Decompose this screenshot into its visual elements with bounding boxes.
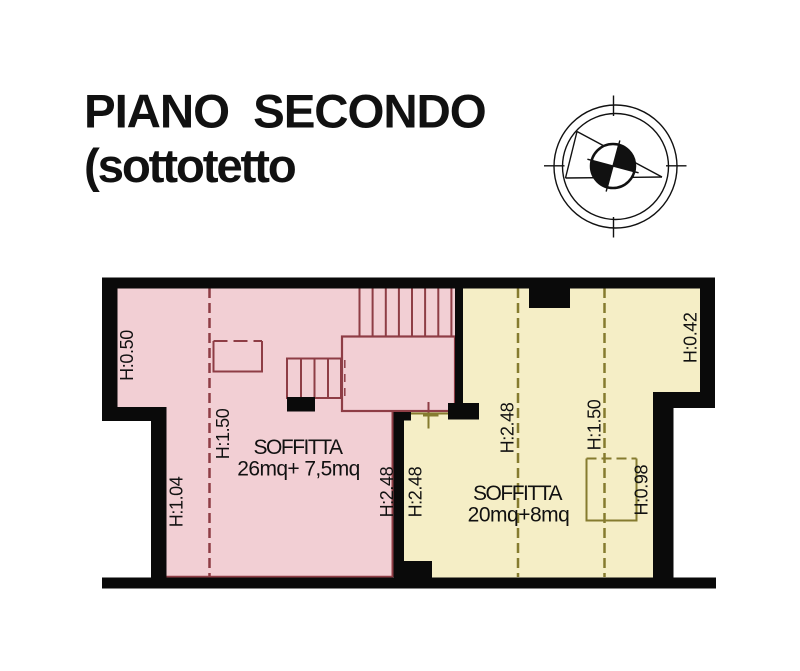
svg-text:20mq+8mq: 20mq+8mq	[468, 504, 570, 527]
svg-text:H:2.48: H:2.48	[377, 466, 397, 517]
svg-text:H:2.48: H:2.48	[406, 466, 426, 517]
svg-text:H:0.42: H:0.42	[680, 312, 700, 363]
svg-text:H:1.04: H:1.04	[167, 476, 187, 527]
svg-text:H:2.48: H:2.48	[498, 402, 518, 453]
svg-text:PIANO SECONDO: PIANO SECONDO	[84, 86, 486, 139]
svg-text:H:0.98: H:0.98	[632, 464, 652, 515]
svg-text:H:0.50: H:0.50	[117, 330, 137, 381]
svg-text:SOFFITTA: SOFFITTA	[254, 436, 343, 459]
svg-text:26mq+ 7,5mq: 26mq+ 7,5mq	[237, 458, 359, 481]
svg-text:(sottotetto: (sottotetto	[84, 140, 296, 193]
svg-text:SOFFITTA: SOFFITTA	[473, 482, 562, 505]
svg-text:H:1.50: H:1.50	[585, 399, 605, 450]
svg-text:H:1.50: H:1.50	[213, 408, 233, 459]
